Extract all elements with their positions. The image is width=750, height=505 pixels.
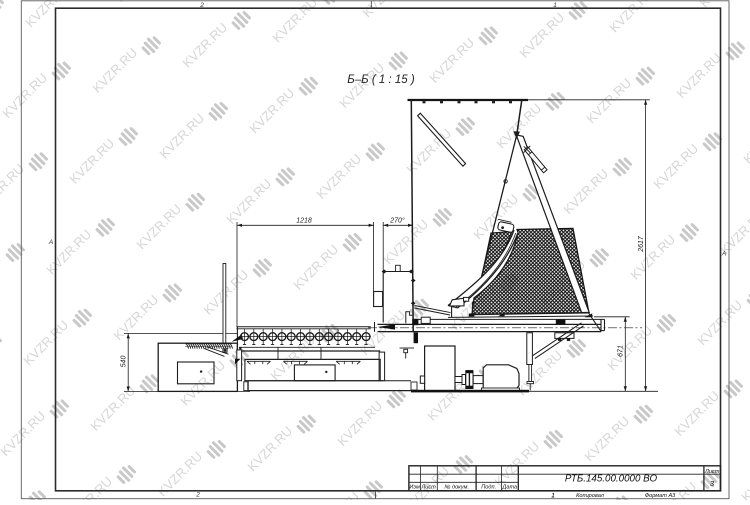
- svg-text:Формат А3: Формат А3: [645, 493, 676, 499]
- svg-text:Изм: Изм: [409, 484, 420, 490]
- svg-text:1: 1: [553, 2, 557, 9]
- svg-text:270°: 270°: [389, 217, 405, 225]
- svg-text:Дата: Дата: [501, 484, 517, 490]
- svg-text:A: A: [48, 239, 53, 246]
- svg-text:540: 540: [120, 356, 127, 368]
- svg-text:2: 2: [199, 2, 204, 9]
- svg-text:1218: 1218: [296, 218, 312, 225]
- svg-text:1: 1: [551, 493, 554, 499]
- svg-text:Копировал: Копировал: [576, 493, 605, 499]
- svg-text:РТБ.145.00.0000 ВО: РТБ.145.00.0000 ВО: [565, 474, 658, 485]
- svg-text:Лист: Лист: [420, 484, 436, 490]
- svg-text:Подп.: Подп.: [481, 484, 496, 490]
- svg-text:Лист: Лист: [704, 469, 720, 475]
- svg-text:2617: 2617: [638, 235, 645, 253]
- svg-text:Б–Б ( 1 : 15 ): Б–Б ( 1 : 15 ): [347, 74, 415, 86]
- svg-text:№ докум.: № докум.: [444, 484, 469, 490]
- svg-text:2: 2: [195, 492, 200, 499]
- svg-text:A: A: [721, 251, 726, 258]
- svg-text:671: 671: [618, 345, 625, 357]
